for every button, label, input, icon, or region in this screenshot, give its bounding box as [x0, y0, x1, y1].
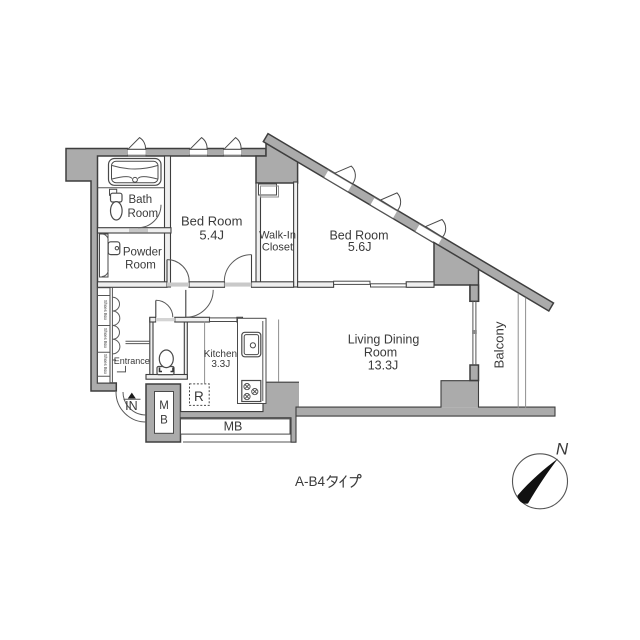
svg-text:Walk-In: Walk-In [259, 230, 296, 242]
svg-text:Shoes Box: Shoes Box [103, 354, 108, 375]
svg-text:Powder: Powder [123, 246, 162, 258]
svg-text:A-B4: A-B4 [295, 474, 326, 489]
svg-text:M: M [159, 400, 169, 412]
svg-text:5.6J: 5.6J [348, 240, 372, 254]
svg-text:Room: Room [127, 208, 158, 220]
svg-text:3.3J: 3.3J [211, 359, 230, 370]
svg-text:N: N [556, 440, 569, 459]
svg-text:Balcony: Balcony [492, 321, 507, 368]
svg-text:Closet: Closet [262, 242, 293, 254]
svg-text:Bath: Bath [128, 194, 152, 206]
svg-text:5.4J: 5.4J [199, 228, 224, 243]
svg-text:R: R [194, 389, 204, 404]
svg-text:MB: MB [224, 420, 243, 434]
svg-text:Room: Room [364, 346, 397, 360]
svg-text:Shoes Box: Shoes Box [103, 300, 108, 321]
svg-text:IN: IN [125, 399, 138, 413]
svg-text:Entrance: Entrance [114, 356, 150, 366]
svg-text:Living Dining: Living Dining [348, 333, 420, 347]
svg-text:13.3J: 13.3J [368, 359, 399, 373]
svg-text:Room: Room [125, 259, 156, 271]
svg-text:Bed Room: Bed Room [181, 214, 242, 229]
svg-text:Shoes Box: Shoes Box [103, 328, 108, 349]
svg-text:B: B [160, 415, 168, 427]
